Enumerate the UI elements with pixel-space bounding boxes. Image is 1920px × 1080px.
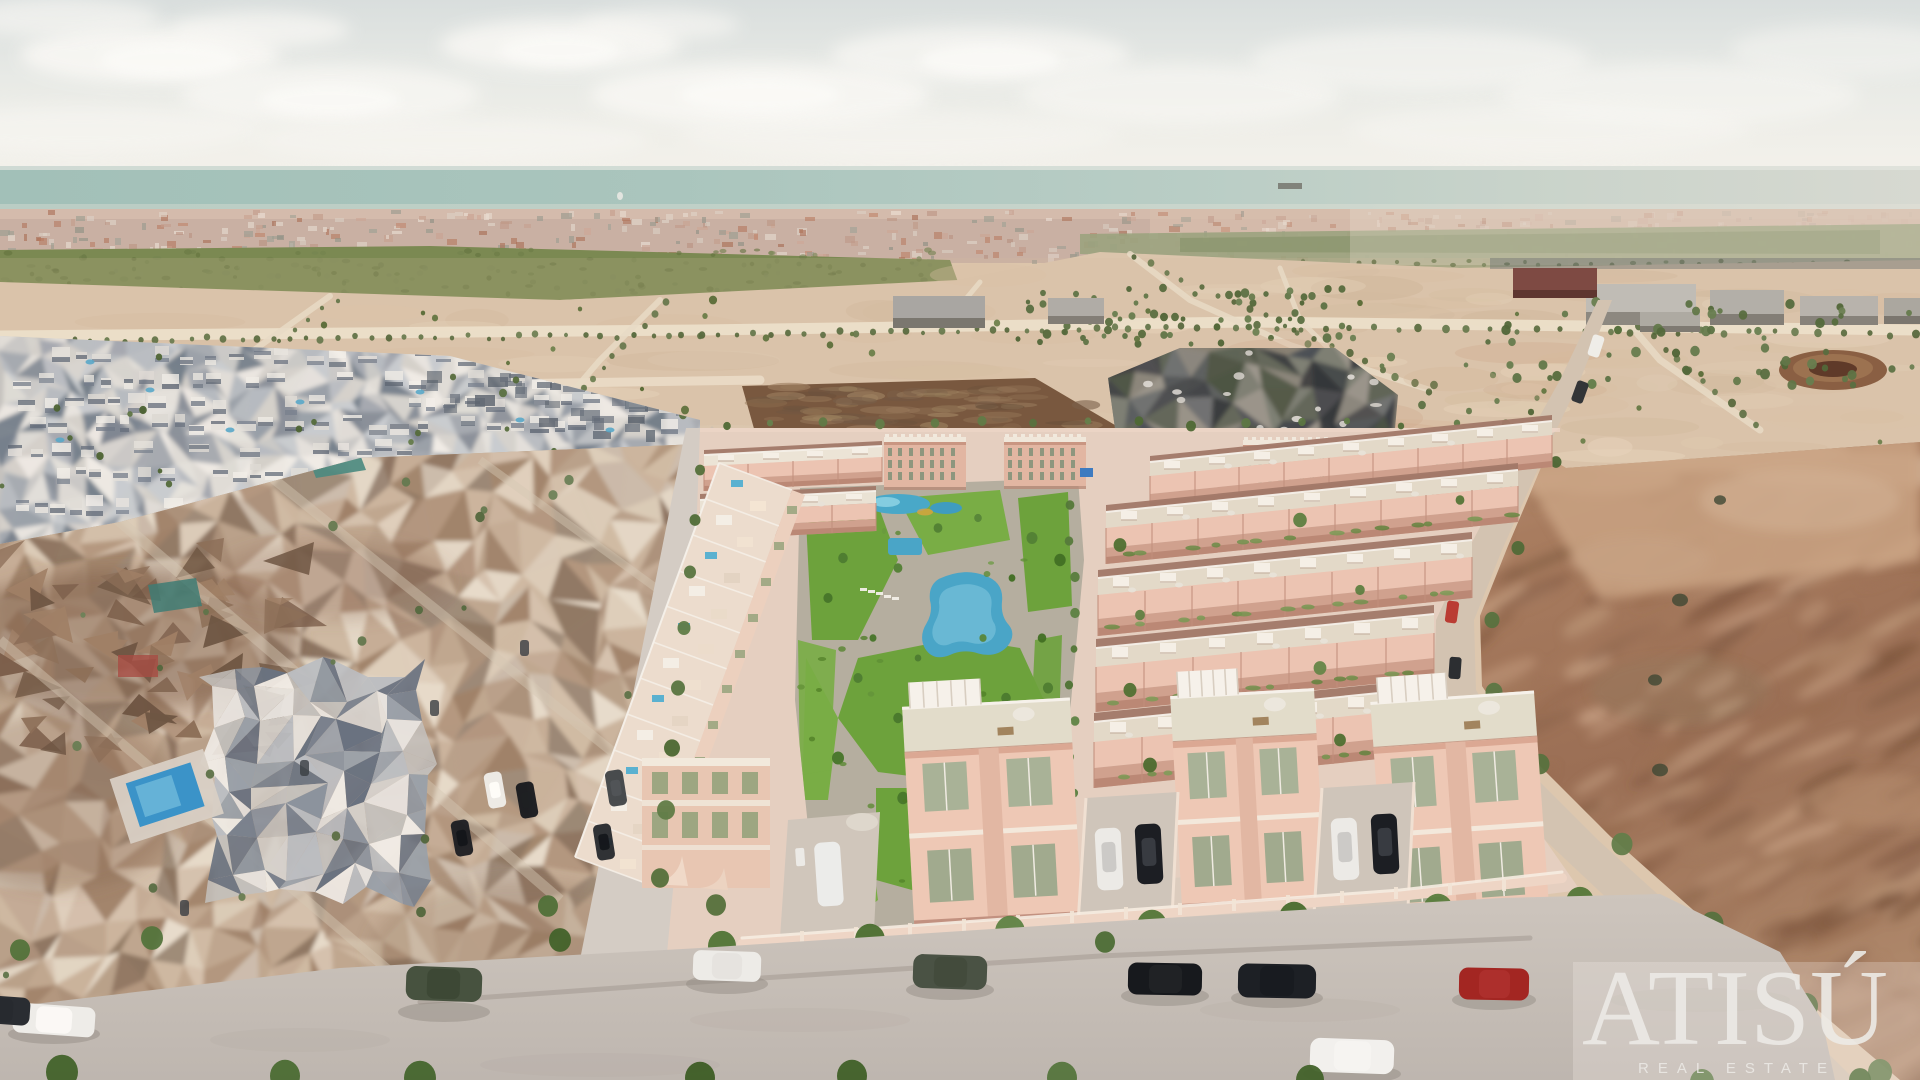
svg-text:REAL ESTATE: REAL ESTATE	[1638, 1060, 1836, 1077]
svg-text:ATISÚ: ATISÚ	[1582, 949, 1888, 1068]
